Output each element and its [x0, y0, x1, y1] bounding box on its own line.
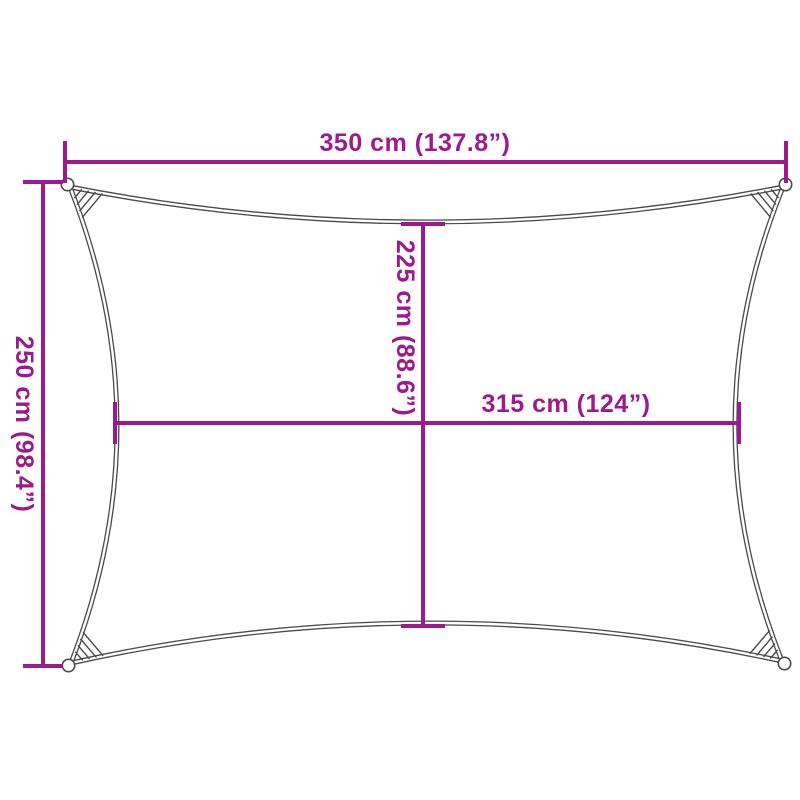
- diagram-canvas: 350 cm (137.8”) 250 cm (98.4”) 225 cm (8…: [0, 0, 800, 800]
- dimension-label-center-height: 225 cm (88.6”): [391, 240, 419, 417]
- dimension-label-center-width: 315 cm (124”): [481, 390, 650, 418]
- corner-ring-bottom-left: [62, 659, 74, 671]
- dimension-label-top-width: 350 cm (137.8”): [320, 129, 511, 157]
- diagram-stage: 350 cm (137.8”) 250 cm (98.4”) 225 cm (8…: [0, 0, 800, 800]
- dimension-label-left-height: 250 cm (98.4”): [10, 336, 38, 513]
- corner-ring-bottom-right: [778, 657, 790, 669]
